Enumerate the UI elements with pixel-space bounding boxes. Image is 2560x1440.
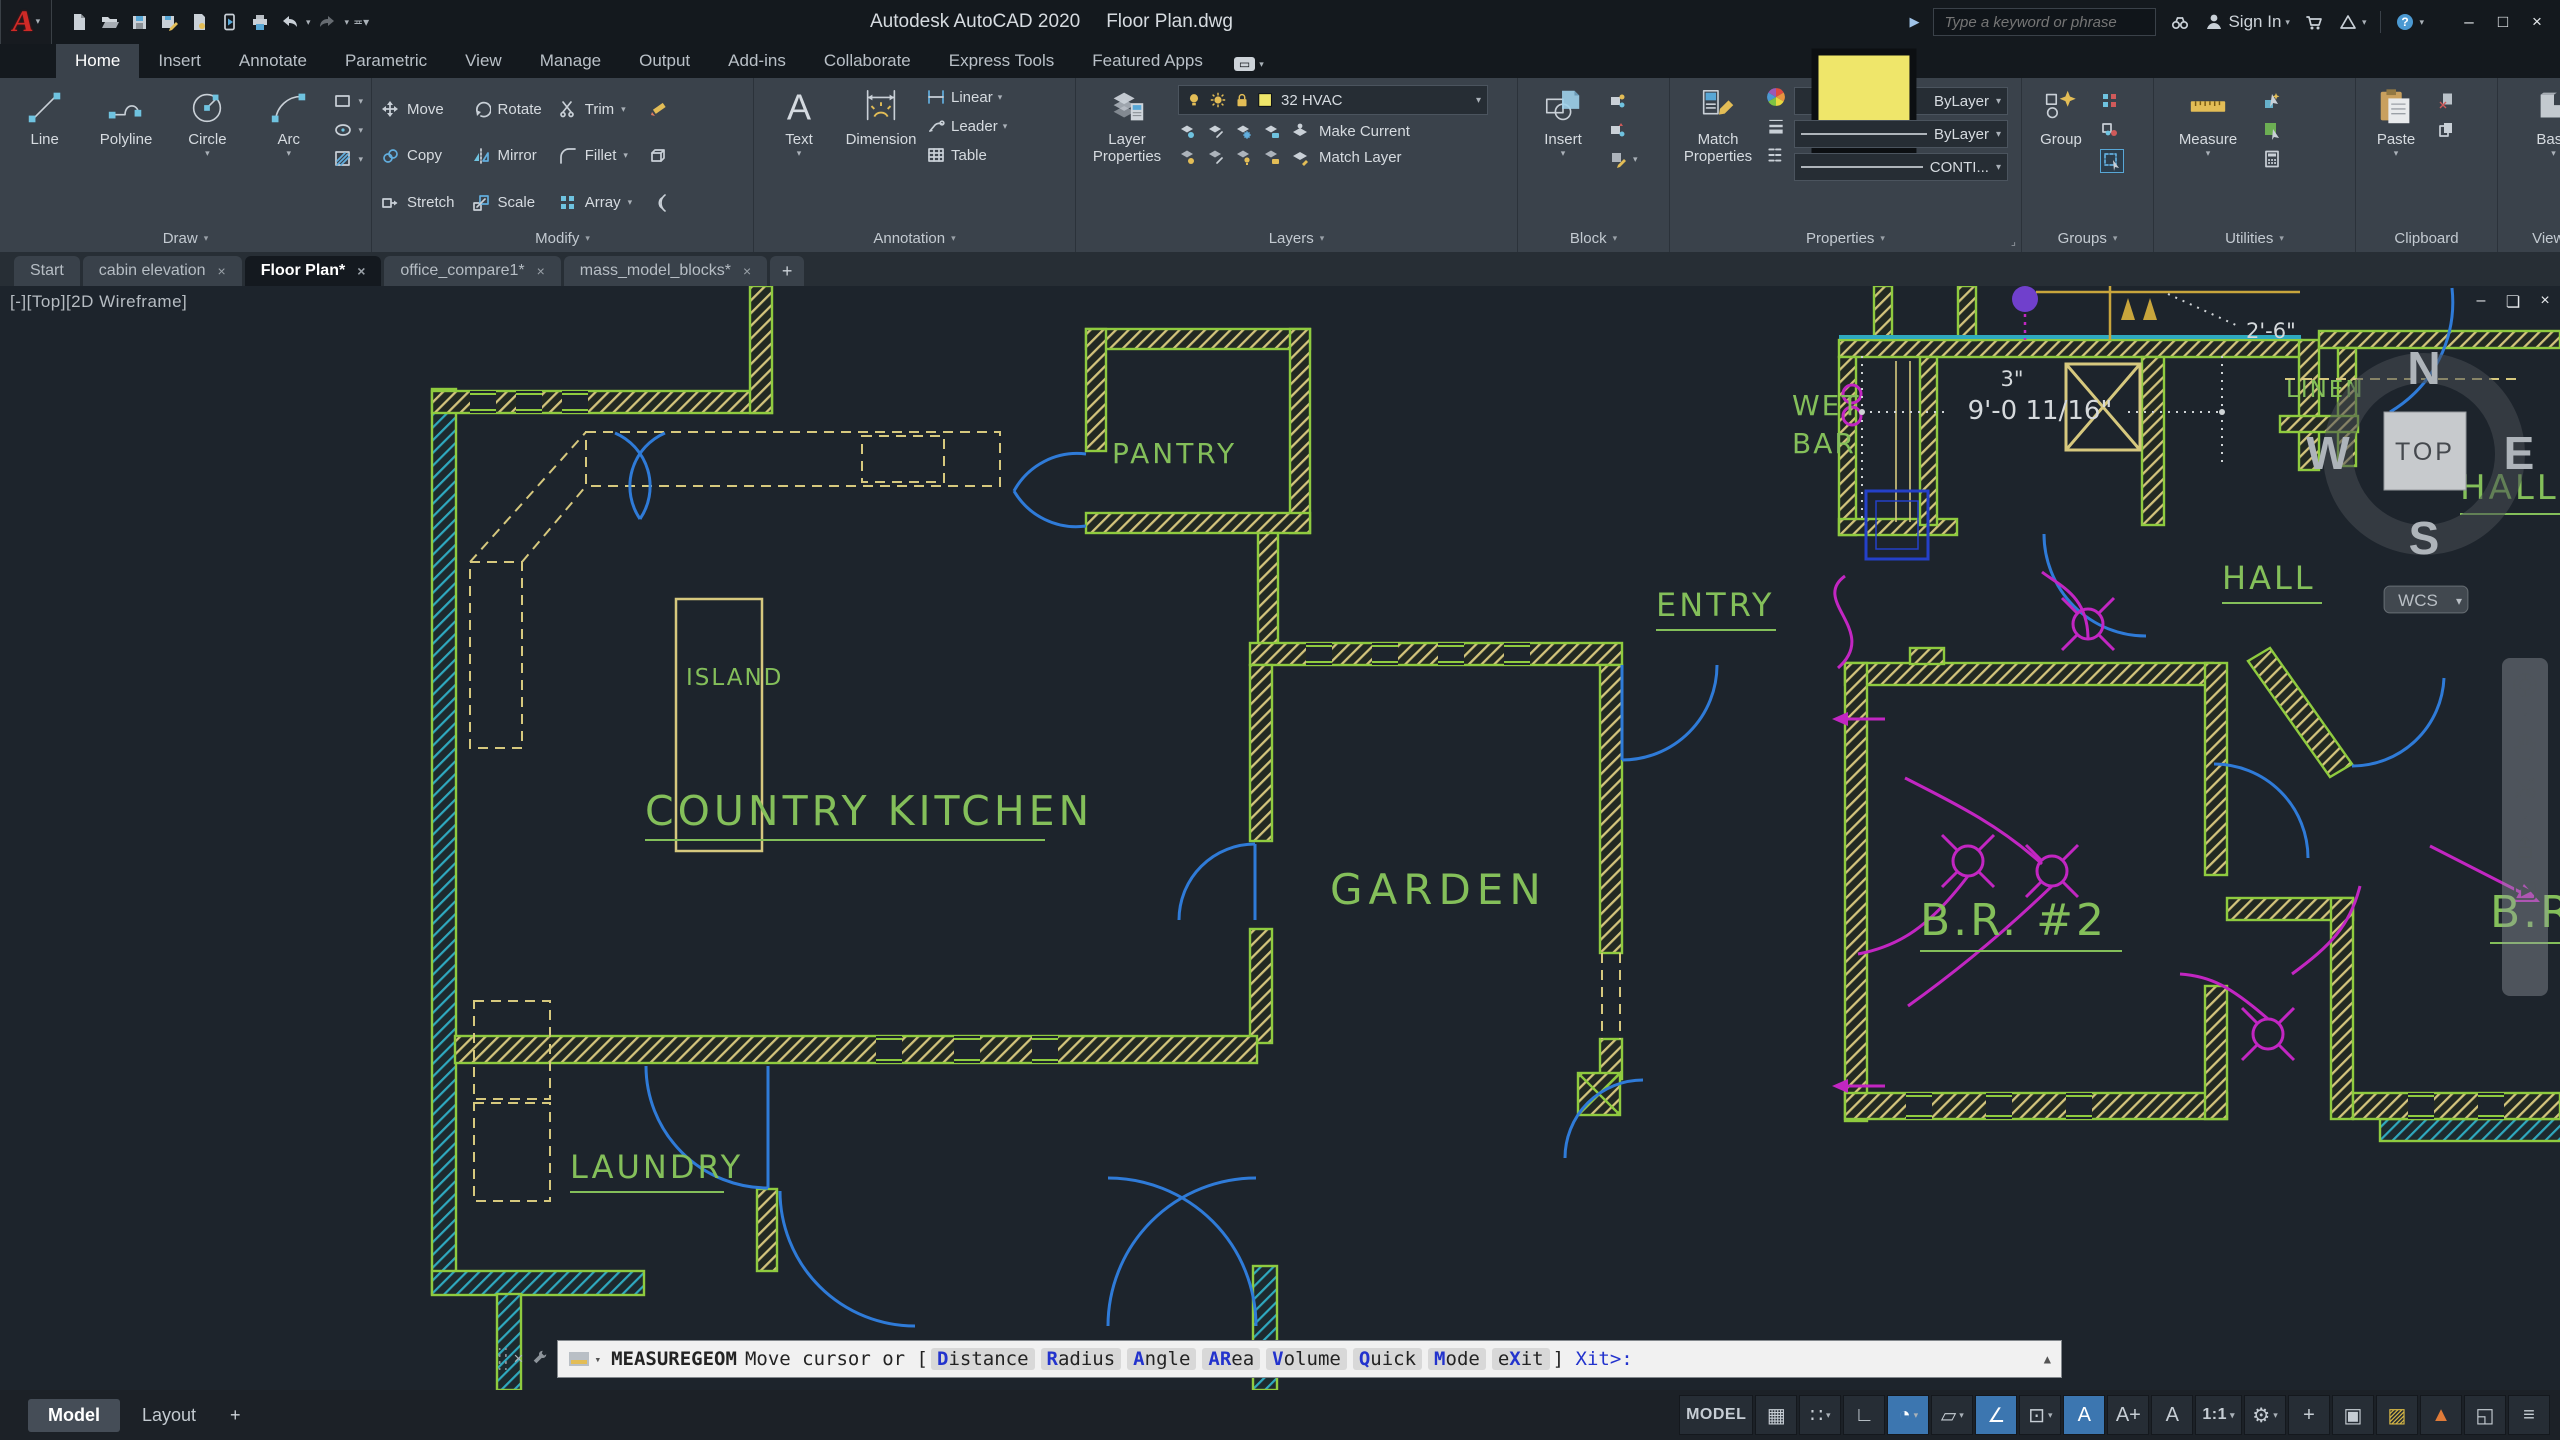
layer-properties-icon [1106,86,1148,128]
explode-icon [648,146,668,166]
undo-button[interactable] [276,9,302,35]
room-label-br2: B.R. #2 [1920,895,2107,946]
file-tab-close-icon[interactable]: × [218,263,226,279]
color-wheel-icon [1766,87,1786,107]
maximize-button[interactable]: □ [2488,7,2518,37]
save-as-icon [159,12,179,32]
object-snap-button[interactable]: ⊡▾ [2019,1395,2061,1435]
command-prompt-suffix: ] Xit>: [1553,1348,1633,1370]
command-customize-button[interactable] [531,1348,549,1371]
trim-icon [558,99,578,119]
panel-annotation: AText▾ Dimension Linear▾ Leader▾ Table A… [754,78,1076,252]
ellipse-icon [333,120,353,140]
text-button[interactable]: AText▾ [762,83,836,225]
erase-button[interactable] [648,87,668,132]
navbar-dropdown-2[interactable]: ▾ [2523,816,2527,820]
full-navigation-icon [2510,833,2540,863]
navigation-bar[interactable]: ▾ ▾ [2502,658,2548,996]
autocad-window: A▾ ▾ ▾ ≖▾ Autodesk AutoCAD 2020 Floor Pl… [0,0,2560,1440]
quick-calculator-button[interactable] [2262,120,2282,140]
group-edit-icon [2100,120,2120,140]
command-prompt-pre: Move cursor or [ [745,1348,928,1370]
ribbon-tab-manage[interactable]: Manage [521,44,620,78]
ribbon-tab-view[interactable]: View [446,44,521,78]
file-tab-mass-model-blocks-[interactable]: mass_model_blocks*× [564,256,767,286]
room-label-island: Island [686,665,783,691]
clipboard-panel-title[interactable]: Clipboard [2356,225,2497,252]
table-icon [926,145,946,165]
room-label-hall: Hall [2222,559,2316,597]
copy-docs-icon [2436,120,2456,140]
printer-icon [249,12,269,32]
viewcube-west: W [2306,427,2350,479]
redo-icon [318,12,338,32]
layer-unisolate-icon [1178,147,1198,167]
status-toggles: MODEL▦∷▾∟◔▾▱▾∠⊡▾AA+A1:1▾⚙▾+▣▨▲◱≡ [1679,1395,2560,1435]
minimize-button[interactable]: – [2454,7,2484,37]
annotation-scale-button[interactable]: 1:1▾ [2195,1395,2242,1435]
properties-panel-title[interactable]: Properties▾⌟ [1670,225,2021,252]
calculator-button[interactable] [2262,149,2282,169]
panel-view: Base▾ View▾⌟ [2498,78,2560,252]
layer-properties-button[interactable]: Layer Properties [1084,83,1170,225]
properties-launcher[interactable]: ⌟ [2011,235,2016,248]
status-bar: Model Layout + MODEL▦∷▾∟◔▾▱▾∠⊡▾AA+A1:1▾⚙… [0,1390,2560,1440]
command-option-angle[interactable]: Angle [1127,1348,1196,1370]
redo-dropdown[interactable]: ▾ [345,17,350,28]
layer-freeze-icon [1234,121,1254,141]
dimension-button[interactable]: Dimension [844,83,918,225]
app-title: Autodesk AutoCAD 2020 [870,11,1080,33]
table-button[interactable]: Table [926,145,1007,165]
command-line[interactable]: ∷∷∷ × ▾ MEASUREGEOM Move cursor or [ Dis… [498,1338,2062,1380]
group-selection-toggle[interactable] [2100,149,2124,173]
copy-icon [380,146,400,166]
quick-properties-button[interactable]: ▣ [2332,1395,2374,1435]
stretch-button[interactable]: Stretch [380,180,455,225]
save-to-mobile-icon [219,12,239,32]
annotation-monitor-button[interactable]: + [2288,1395,2330,1435]
file-tab-close-icon[interactable]: × [357,263,365,279]
panel-utilities: Measure▾ Utilities▾ [2154,78,2356,252]
group-icon [2040,86,2082,128]
ribbon-tab-output[interactable]: Output [620,44,709,78]
leader-button[interactable]: Leader▾ [926,116,1007,136]
panel-groups: Group Groups▾ [2022,78,2154,252]
object-color-button[interactable] [1766,87,1786,107]
layers-panel-title[interactable]: Layers▾ [1076,225,1517,252]
edit-attributes-button[interactable] [1608,91,1638,111]
file-tab-close-icon[interactable]: × [537,263,545,279]
model-tab[interactable]: Model [28,1399,120,1432]
grid-display-button[interactable]: ▦ [1755,1395,1797,1435]
lineweight-icon [1766,116,1786,136]
layout-tab[interactable]: Layout [122,1399,216,1432]
layer-off-icon [1178,121,1198,141]
line-icon [24,86,66,128]
viewport-label[interactable]: [-][Top][2D Wireframe] [10,292,187,312]
linear-dimension-button[interactable]: Linear▾ [926,87,1007,107]
panel-clipboard: Paste▾ Clipboard [2356,78,2498,252]
command-option-radius[interactable]: Radius [1041,1348,1122,1370]
layout-tabs: Model Layout + [0,1390,253,1440]
room-label-laundry: Laundry [570,1148,743,1186]
file-tab-start[interactable]: Start [14,256,80,286]
isolate-objects-button[interactable]: ▨ [2376,1395,2418,1435]
wet-bar-counter [1896,361,1910,522]
new-drawing-tab-button[interactable]: + [770,256,804,286]
zoom-orbit-icon [2510,773,2540,803]
annotation-panel-title[interactable]: Annotation▾ [754,225,1075,252]
fillet-button[interactable]: Fillet▾ [558,134,632,179]
insert-button[interactable]: Insert▾ [1526,83,1600,225]
document-title: Floor Plan.dwg [1106,11,1233,33]
ribbon-tab-insert[interactable]: Insert [139,44,220,78]
viewport-close-button[interactable]: × [2536,292,2554,312]
window-controls: – □ × [2454,7,2552,37]
store-button[interactable] [2304,12,2324,32]
annotation-scale-icon-button[interactable]: A [2151,1395,2193,1435]
layer-freeze-sun-icon [1209,91,1227,109]
title-bar: A▾ ▾ ▾ ≖▾ Autodesk AutoCAD 2020 Floor Pl… [0,0,2560,44]
arc-icon [268,86,310,128]
quick-calc-icon [2262,120,2282,140]
arc-button[interactable]: Arc▾ [252,83,325,225]
clean-screen-button[interactable]: ◱ [2464,1395,2506,1435]
utilities-panel-title[interactable]: Utilities▾ [2154,225,2355,252]
layer-on-bulb-icon [1185,91,1203,109]
graphics-performance-button[interactable]: ▲ [2420,1395,2462,1435]
linear-icon [926,87,946,107]
model-space-toggle-button[interactable]: MODEL [1679,1395,1753,1435]
fillet-icon [558,146,578,166]
cut-icon [2436,91,2456,111]
dimension-9ft: 9'-0 11/16" [1968,396,2113,426]
room-labels: PantryIslandCountry KitchenGardenEntryLa… [570,377,2560,1192]
search-button[interactable] [2170,12,2190,32]
panel-block: Insert▾ ▾ Block▾ [1518,78,1670,252]
new-file-icon [69,12,89,32]
ribbon-tab-parametric[interactable]: Parametric [326,44,446,78]
make-current-icon [1290,121,1310,141]
panel-properties: Match Properties ByLayer▾ ByLayer▾ CONTI… [1670,78,2022,252]
workspace-switching-button[interactable]: ⚙▾ [2244,1395,2286,1435]
measure-button[interactable]: Measure▾ [2162,83,2254,225]
paste-button[interactable]: Paste▾ [2364,83,2428,225]
new-layout-button[interactable]: + [218,1399,253,1432]
title-bar-right: ▶ Sign In▾ ▾ ?▾ – □ × [1909,0,2552,44]
help-button[interactable]: ?▾ [2395,12,2424,32]
window-title: Autodesk AutoCAD 2020 Floor Plan.dwg [870,0,1233,44]
circle-icon [186,86,228,128]
text-icon: A [778,86,820,128]
help-icon: ? [2395,12,2415,32]
array-button[interactable]: Array▾ [558,180,632,225]
quick-select-button[interactable] [2262,91,2282,111]
dimension-2ft6: 2'-6" [2246,319,2296,343]
file-tab-cabin-elevation[interactable]: cabin elevation× [83,256,242,286]
array-icon [558,193,578,213]
make-current-button[interactable]: Make Current [1290,121,1410,141]
snap-mode-button[interactable]: ∷▾ [1799,1395,1841,1435]
undo-dropdown[interactable]: ▾ [306,17,311,28]
layer-dropdown[interactable]: 32 HVAC ▾ [1178,85,1488,115]
annotation-visibility-button[interactable]: A [2063,1395,2105,1435]
trim-button[interactable]: Trim▾ [558,87,632,132]
linetype-button[interactable] [1766,145,1786,165]
move-icon [380,99,400,119]
cart-icon [2304,12,2324,32]
rectangle-icon [333,91,353,111]
offset-button[interactable] [648,180,668,225]
plot-button[interactable] [246,9,272,35]
layer-color-swatch [1257,91,1275,109]
navbar-dropdown[interactable]: ▾ [2523,713,2527,717]
linetype-dropdown[interactable]: CONTI...▾ [1794,153,2008,181]
ribbon-tab-express-tools[interactable]: Express Tools [930,44,1074,78]
stretch-icon [380,193,400,213]
save-to-mobile-button[interactable] [216,9,242,35]
room-label-wet_bar_2: Bar [1792,427,1856,460]
line-button[interactable]: Line [8,83,81,225]
layer-turn-on-icon [1234,147,1254,167]
block-editor-button[interactable]: ▾ [1608,149,1638,169]
active-command: MEASUREGEOM [611,1348,737,1370]
ribbon-tab-row: HomeInsertAnnotateParametricViewManageOu… [0,44,2560,78]
autocad-logo-icon: A [10,5,36,39]
group-edit-button[interactable] [2100,120,2124,140]
ribbon-tab-add-ins[interactable]: Add-ins [709,44,805,78]
ribbon-toggle-icon: ▭ [1234,57,1255,71]
isometric-drafting-button[interactable]: ▱▾ [1931,1395,1973,1435]
layer-lock-icon [1233,91,1251,109]
quick-access-toolbar: ▾ ▾ ≖▾ [66,9,369,35]
room-label-pantry: Pantry [1112,437,1237,470]
panel-draw: Line Polyline Circle▾ Arc▾ ▾ ▾ ▾ Draw▾ [0,78,372,252]
lineweight-button[interactable] [1766,116,1786,136]
paste-clipboard-icon [2375,86,2417,128]
block-editor-icon [1608,149,1628,169]
linetype-icon [1766,145,1786,165]
room-label-garden: Garden [1330,865,1547,914]
navigation-wheel-icon [2510,670,2540,700]
ribbon-tab-featured-apps[interactable]: Featured Apps [1073,44,1222,78]
room-label-entry: Entry [1656,586,1774,624]
color-dropdown[interactable]: ByLayer▾ [1794,87,2008,115]
ribbon-tab-collaborate[interactable]: Collaborate [805,44,930,78]
offset-icon [648,193,668,213]
ribbon-display-toggle[interactable]: ▭▾ [1222,50,1276,78]
ribbon-tab-annotate[interactable]: Annotate [220,44,326,78]
move-button[interactable]: Move [380,87,455,132]
match-layer-button[interactable]: Match Layer [1290,147,1402,167]
command-options: DistanceRadiusAngleAReaVolumeQuickModeeX… [928,1348,1553,1370]
viewcube-top-label: TOP [2395,438,2455,466]
command-history-toggle[interactable]: ▲ [2044,1352,2051,1366]
layer-thaw-icon [1206,147,1226,167]
layer-isolate-icon [1206,121,1226,141]
rotate-icon [471,99,491,119]
close-button[interactable]: × [2522,7,2552,37]
panel-layers: Layer Properties 32 HVAC ▾ [1076,78,1518,252]
layer-lock-small-icon [1262,121,1282,141]
draw-panel-title[interactable]: Draw▾ [0,225,371,252]
chevron-down-icon: ▾ [36,16,41,27]
measure-ruler-icon [2187,86,2229,128]
create-attribute-button[interactable] [1608,120,1638,140]
leader-icon [926,116,946,136]
svg-text:?: ? [2402,15,2409,29]
interior-walls [432,286,2560,1271]
command-input-bar[interactable]: ▾ MEASUREGEOM Move cursor or [ DistanceR… [557,1340,2062,1378]
ribbon: Line Polyline Circle▾ Arc▾ ▾ ▾ ▾ Draw▾ M… [0,78,2560,252]
insert-block-icon [1542,86,1584,128]
viewport-window-controls: – ❏ × [2472,292,2554,312]
hatch-icon [333,149,353,169]
create-attribute-icon [1608,120,1628,140]
user-icon [2204,12,2224,32]
command-close-button[interactable]: × [514,1349,524,1369]
polyline-icon [105,86,147,128]
command-option-area[interactable]: ARea [1202,1348,1260,1370]
file-tab-floor-plan-[interactable]: Floor Plan*× [245,256,382,286]
cut-button[interactable] [2436,91,2456,111]
angled-wall [2248,648,2352,777]
group-selection-icon [2102,151,2122,171]
autodesk-app-icon [2338,12,2358,32]
quick-select-icon [2262,91,2282,111]
viewcube-east: E [2504,427,2535,479]
wrench-icon [531,1348,549,1366]
application-menu-button[interactable]: A▾ [0,0,52,45]
base-view-icon [2533,86,2560,128]
scale-icon [471,193,491,213]
dimension-icon [860,86,902,128]
customize-quick-access-button[interactable]: ≖▾ [353,15,369,29]
file-tab-office-compare1-[interactable]: office_compare1*× [384,256,560,286]
command-option-distance[interactable]: Distance [931,1348,1035,1370]
hatch-button[interactable]: ▾ [333,149,363,169]
command-option-volume[interactable]: Volume [1266,1348,1347,1370]
app-store-button[interactable]: ▾ [2338,12,2367,32]
panel-modify: Move Copy Stretch Rotate Mirror Scale Tr… [372,78,754,252]
show-motion-icon [2510,876,2540,906]
ribbon-tab-home[interactable]: Home [56,44,139,78]
sign-in-button[interactable]: Sign In▾ [2204,12,2289,32]
room-label-country_kitchen: Country Kitchen [645,787,1093,835]
command-option-quick[interactable]: Quick [1353,1348,1422,1370]
eraser-pencil-icon [648,99,668,119]
ungroup-icon [2100,91,2120,111]
wcs-label: WCS [2398,591,2438,610]
viewcube-north: N [2407,342,2440,394]
open-from-web-button[interactable] [186,9,212,35]
power-riser [2012,286,2038,340]
object-snap-tracking-button[interactable]: ∠ [1975,1395,2017,1435]
new-file-button[interactable] [66,9,92,35]
match-properties-button[interactable]: Match Properties [1678,83,1758,225]
wcs-dropdown[interactable]: WCS ▾ [2384,586,2468,613]
binoculars-icon [2170,12,2190,32]
command-option-mode[interactable]: Mode [1428,1348,1486,1370]
block-panel-title[interactable]: Block▾ [1518,225,1669,252]
ortho-mode-button[interactable]: ∟ [1843,1395,1885,1435]
save-button[interactable] [126,9,152,35]
polyline-button[interactable]: Polyline [89,83,162,225]
copy-button[interactable]: Copy [380,134,455,179]
copy-clip-button[interactable] [2436,120,2456,140]
open-from-web-icon [189,12,209,32]
current-layer-name: 32 HVAC [1281,92,1342,109]
recent-commands-dropdown[interactable]: ▾ [594,1353,601,1366]
polar-tracking-button[interactable]: ◔▾ [1887,1395,1929,1435]
mirror-button[interactable]: Mirror [471,134,542,179]
view-panel-title[interactable]: View▾⌟ [2498,225,2560,252]
search-input[interactable] [1942,13,2147,32]
room-label-wet_bar_1: Wet [1792,389,1860,422]
match-layer-icon [1290,147,1310,167]
ungroup-button[interactable] [2100,91,2124,111]
floor-plan[interactable]: 9'-0 11/16" 3" 2'-6" PantryIslandCountry… [0,286,2560,1390]
ellipse-button[interactable]: ▾ [333,120,363,140]
groups-panel-title[interactable]: Groups▾ [2022,225,2153,252]
viewport-restore-button[interactable]: ❏ [2504,292,2522,312]
rotate-button[interactable]: Rotate [471,87,542,132]
dimension-3in: 3" [2000,367,2023,391]
file-tab-bar: Startcabin elevation×Floor Plan*×office_… [0,252,2560,286]
open-folder-icon [99,12,119,32]
redo-button[interactable] [315,9,341,35]
pan-hand-icon [2510,730,2540,760]
edit-attribute-icon [1608,91,1628,111]
annotation-autoscale-button[interactable]: A+ [2107,1395,2149,1435]
match-properties-icon [1697,86,1739,128]
explode-button[interactable] [648,134,668,179]
layer-unlock-icon [1262,147,1282,167]
lineweight-dropdown[interactable]: ByLayer▾ [1794,120,2008,148]
search-expand-icon[interactable]: ▶ [1909,14,1919,30]
windows [470,391,2504,1119]
mirror-icon [471,146,491,166]
viewport-minimize-button[interactable]: – [2472,292,2490,312]
scale-button[interactable]: Scale [471,180,542,225]
base-button[interactable]: Base▾ [2517,83,2560,225]
group-button[interactable]: Group [2030,83,2092,225]
command-grip[interactable]: ∷∷∷ [498,1349,506,1370]
undo-icon [279,12,299,32]
command-icon [568,1351,590,1367]
calculator-icon [2262,149,2282,169]
customize-button[interactable]: ≡ [2508,1395,2550,1435]
viewcube-south: S [2409,512,2440,564]
help-search-box[interactable] [1933,8,2156,36]
modify-panel-title[interactable]: Modify▾ [372,225,753,252]
open-button[interactable] [96,9,122,35]
drawing-area[interactable]: 9'-0 11/16" 3" 2'-6" PantryIslandCountry… [0,286,2560,1390]
save-icon [129,12,149,32]
file-tab-close-icon[interactable]: × [743,263,751,279]
svg-text:A: A [787,86,812,127]
circle-button[interactable]: Circle▾ [171,83,244,225]
save-as-button[interactable] [156,9,182,35]
command-option-exit[interactable]: eXit [1492,1348,1550,1370]
svg-text:▾: ▾ [2456,594,2462,608]
rectangle-button[interactable]: ▾ [333,91,363,111]
